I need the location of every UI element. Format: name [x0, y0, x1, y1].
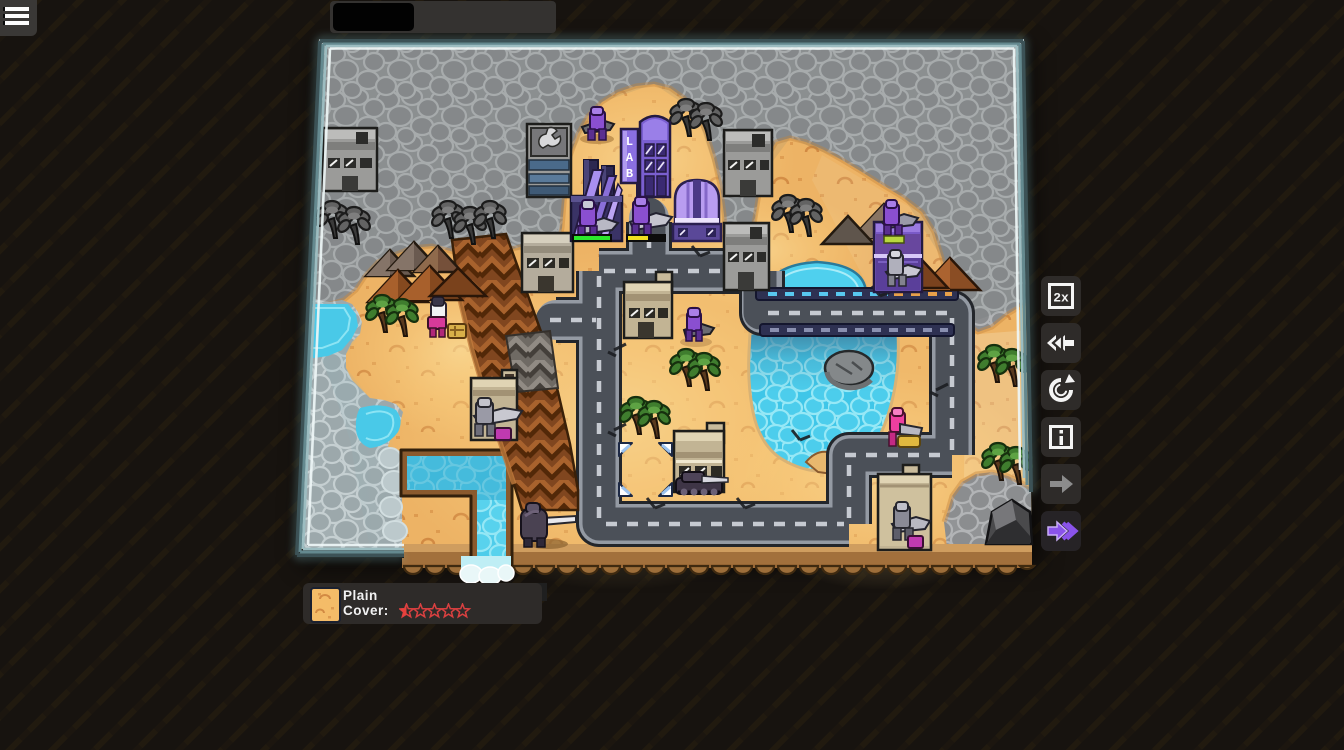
- svg-text:2x: 2x: [1053, 291, 1069, 306]
- svg-text:L: L: [626, 135, 633, 149]
- svg-text:B: B: [626, 167, 633, 181]
- svg-text:A: A: [626, 151, 634, 165]
